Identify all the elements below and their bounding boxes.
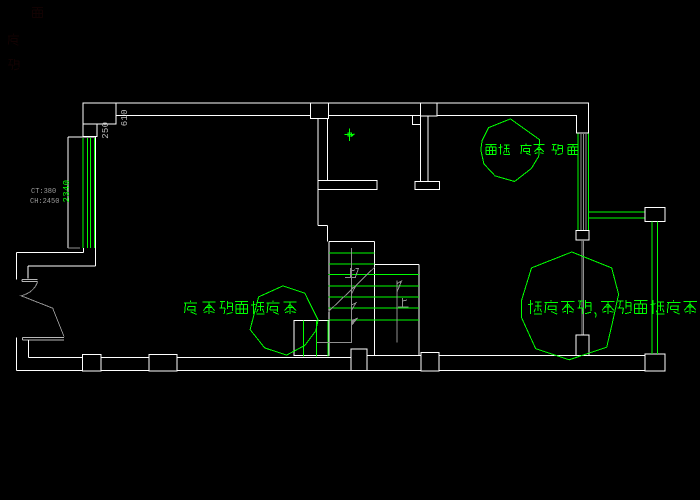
svg-text:610: 610: [120, 109, 130, 126]
svg-text:CT:380: CT:380: [31, 188, 56, 196]
svg-text:CH:2450: CH:2450: [30, 198, 59, 206]
svg-text:2340: 2340: [62, 180, 72, 203]
svg-text:250: 250: [101, 122, 111, 139]
